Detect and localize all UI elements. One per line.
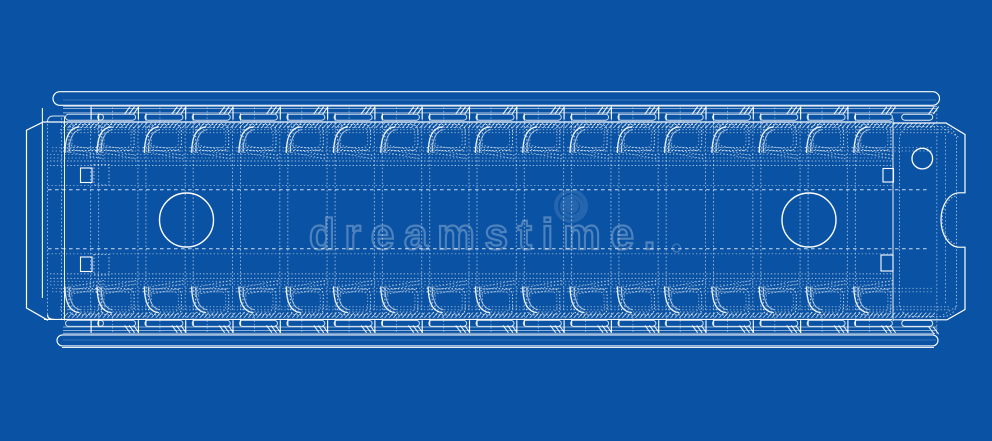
svg-text:dreamstime.: dreamstime.	[309, 210, 665, 259]
